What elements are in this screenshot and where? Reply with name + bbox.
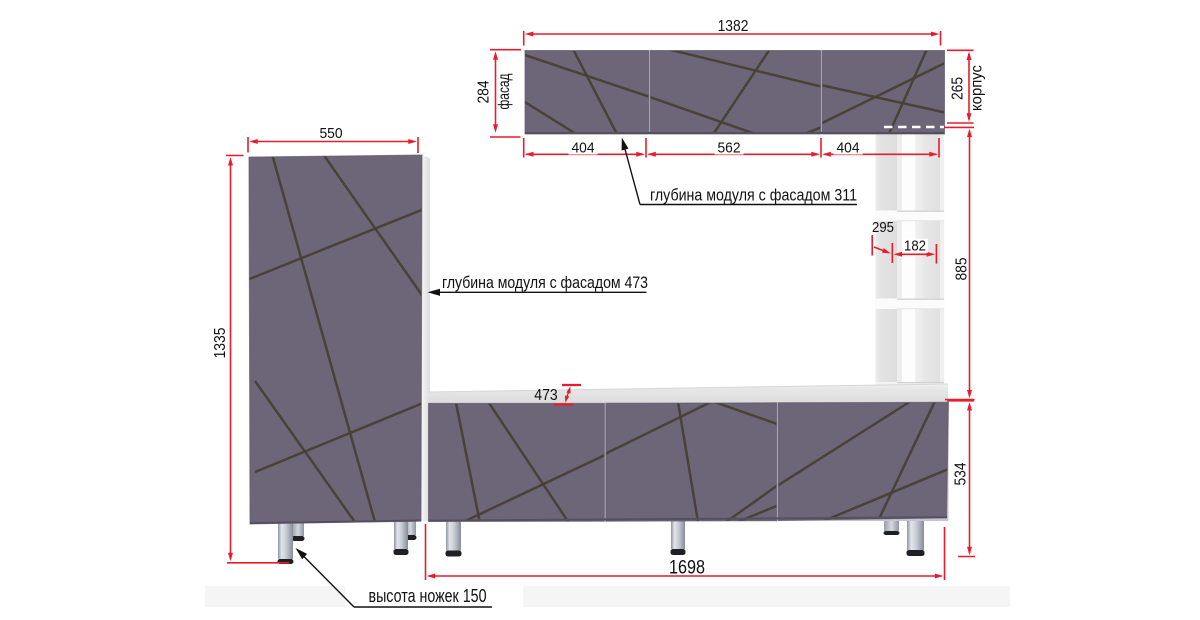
svg-text:473: 473: [534, 387, 558, 404]
svg-text:534: 534: [953, 462, 970, 485]
svg-text:265: 265: [949, 77, 966, 100]
svg-text:284: 284: [476, 80, 493, 103]
svg-text:1698: 1698: [669, 558, 705, 579]
svg-text:404: 404: [571, 139, 594, 156]
svg-text:550: 550: [319, 125, 342, 142]
svg-text:корпус: корпус: [969, 65, 986, 111]
svg-text:высота ножек 150: высота ножек 150: [369, 586, 487, 606]
svg-text:фасад: фасад: [496, 74, 513, 110]
svg-text:562: 562: [717, 139, 740, 156]
svg-text:глубина модуля с фасадом 473: глубина модуля с фасадом 473: [442, 273, 648, 292]
svg-text:885: 885: [954, 257, 971, 280]
svg-text:глубина модуля с фасадом 311: глубина модуля с фасадом 311: [650, 186, 857, 205]
svg-text:295: 295: [872, 219, 894, 236]
svg-text:182: 182: [904, 238, 926, 255]
svg-text:1382: 1382: [718, 18, 749, 35]
svg-text:404: 404: [836, 139, 859, 156]
svg-text:1335: 1335: [212, 328, 229, 359]
